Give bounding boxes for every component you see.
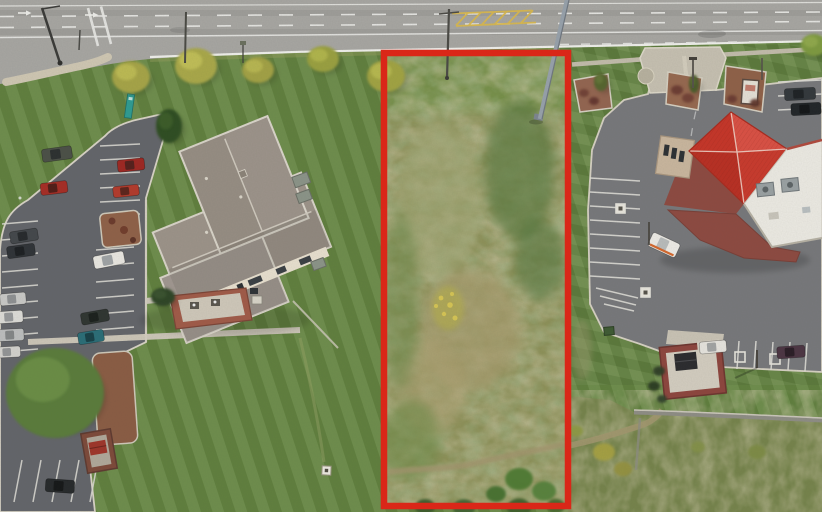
photo-grain-overlay	[0, 0, 822, 512]
aerial-lot-photo	[0, 0, 822, 512]
aerial-photo-svg	[0, 0, 822, 512]
